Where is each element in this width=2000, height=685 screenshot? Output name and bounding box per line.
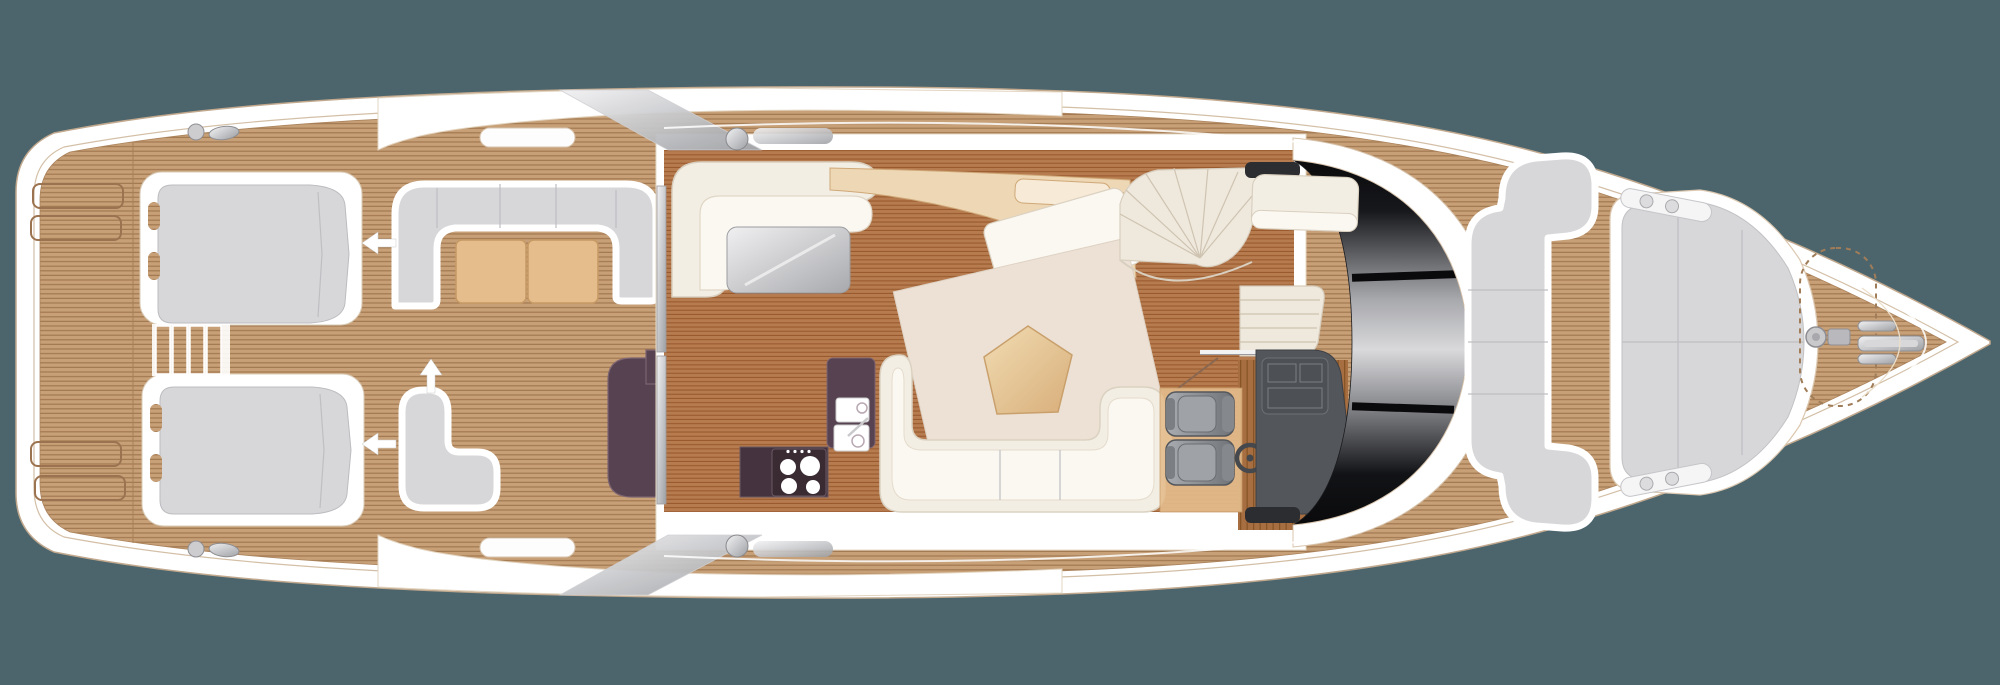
burner [806, 480, 820, 494]
helm-seat [1166, 392, 1234, 436]
deck-hatch-pill [480, 128, 575, 147]
galley-sink [827, 358, 875, 451]
grab-slot [150, 404, 162, 432]
helm-seat [1166, 440, 1234, 485]
sliding-door [657, 186, 666, 504]
grab-slot [150, 454, 162, 482]
deck-vent [753, 128, 833, 144]
deck-dome-fitting [726, 535, 748, 557]
floorplan-stage [0, 0, 2000, 685]
transom-seat-lower [142, 374, 364, 526]
windlass [1806, 327, 1850, 347]
burner [781, 478, 797, 494]
stern-fitting [188, 541, 204, 557]
yacht-deck-plan [0, 0, 2000, 685]
stern-fitting [188, 124, 204, 140]
cockpit-table [456, 240, 526, 303]
transom-steps [152, 324, 230, 376]
grab-slot [148, 202, 160, 230]
cockpit-table [528, 240, 598, 303]
burner [800, 456, 820, 476]
deck-vent [753, 541, 833, 557]
helm-dashboard [1262, 358, 1328, 414]
grab-slot [148, 252, 160, 280]
deck-dome-fitting [726, 128, 748, 150]
companion-bench [1251, 174, 1359, 232]
helm-seats [1160, 388, 1242, 512]
galley-stove [740, 447, 828, 497]
deck-hatch-pill [480, 538, 575, 557]
side-window-strip [1245, 507, 1300, 523]
burner [780, 459, 796, 475]
transom-seat-upper [140, 172, 362, 325]
